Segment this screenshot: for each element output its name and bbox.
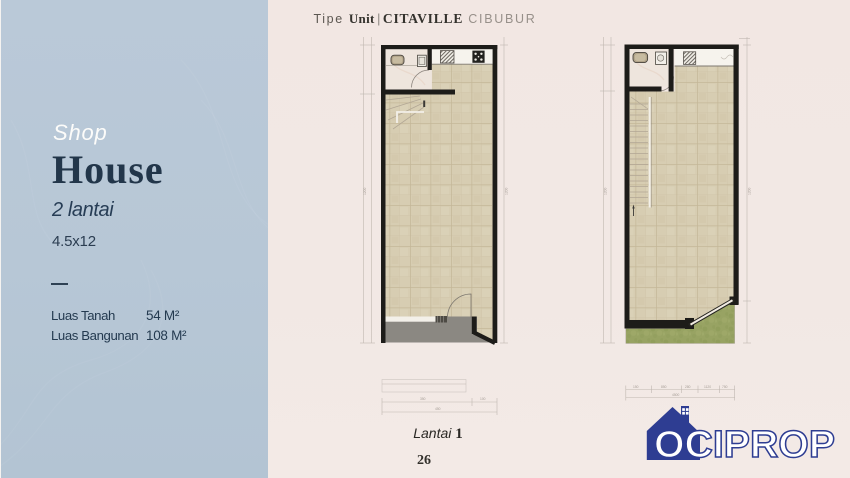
svg-text:1120: 1120: [704, 385, 711, 389]
svg-text:100: 100: [480, 397, 486, 401]
svg-text:150: 150: [633, 385, 639, 389]
svg-text:280: 280: [685, 385, 691, 389]
svg-text:750: 750: [722, 385, 728, 389]
svg-text:450: 450: [435, 407, 441, 411]
svg-text:1200: 1200: [505, 187, 509, 195]
svg-text:1200: 1200: [363, 187, 367, 195]
svg-text:350: 350: [420, 397, 426, 401]
svg-text:1200: 1200: [604, 187, 608, 195]
svg-text:850: 850: [661, 385, 667, 389]
svg-text:OCIPROP: OCIPROP: [654, 424, 835, 466]
svg-text:4500: 4500: [672, 393, 680, 397]
svg-text:1200: 1200: [748, 187, 752, 195]
